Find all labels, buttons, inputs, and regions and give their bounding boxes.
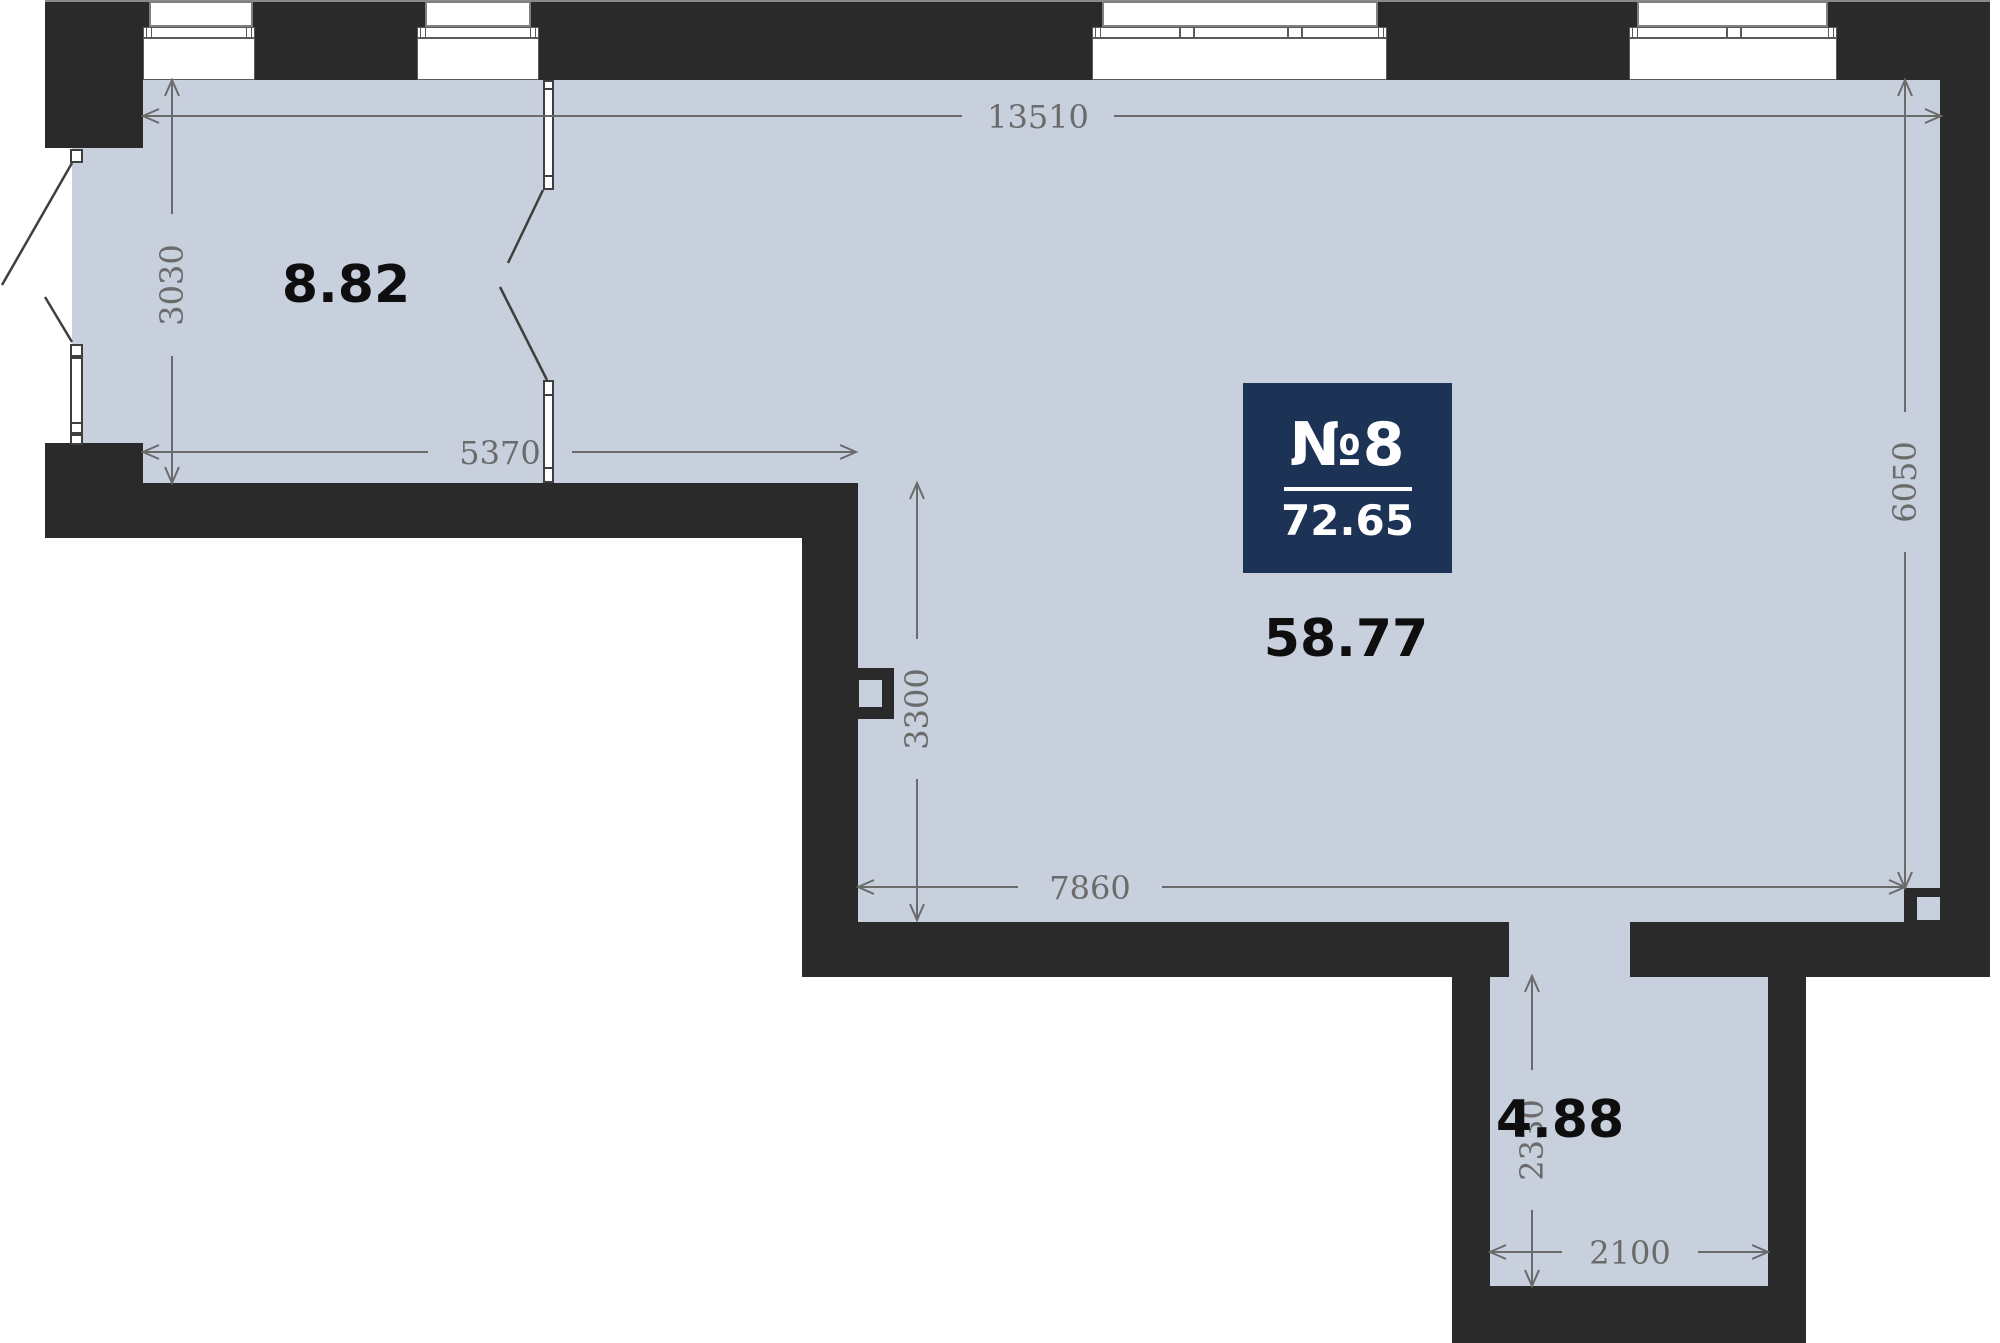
- window-3-post-right: [1378, 28, 1384, 37]
- duct-left-wall-opening: [859, 680, 882, 707]
- window-4-post-right: [1828, 28, 1834, 37]
- window-4-inner-sash: [1629, 38, 1837, 80]
- balcony-door-frame-top: [70, 149, 83, 163]
- floor-plan: 13510 5370 3030 6050 3300 7860: [0, 0, 2000, 1343]
- balcony-fixed-pane: [70, 357, 83, 434]
- window-3-sill: [1092, 27, 1387, 38]
- window-3-post-left: [1095, 28, 1101, 37]
- window-3-outer-sash: [1102, 1, 1378, 27]
- floor-corridor: [1509, 922, 1630, 977]
- window-2-outer-sash: [425, 1, 531, 27]
- balcony-door-frame-mid: [70, 344, 83, 357]
- room-area-label-main: 58.77: [1264, 609, 1428, 669]
- window-3-mullion-1: [1179, 28, 1195, 37]
- window-3-inner-sash: [1092, 38, 1387, 80]
- partition-stub-top-endbar: [545, 175, 552, 177]
- duct-right-corner-opening: [1917, 897, 1940, 920]
- partition-stub-top-cap: [545, 88, 552, 90]
- unit-badge: №8 72.65: [1243, 383, 1452, 573]
- balcony-door-frame-bottom: [70, 434, 83, 445]
- wall-bottom-band-left: [802, 922, 1509, 977]
- room-area-label-hall: 4.88: [1496, 1090, 1624, 1150]
- balcony-door-leaf-1: [2, 163, 72, 285]
- wall-vertical-inner: [802, 538, 858, 977]
- window-3-mullion-2: [1287, 28, 1303, 37]
- partition-stub-bottom-endbar: [545, 467, 552, 469]
- window-1-inner-sash: [143, 38, 255, 80]
- window-1-sill: [143, 27, 255, 38]
- window-2-post-right: [530, 28, 536, 37]
- window-1-outer-sash: [149, 1, 253, 27]
- balcony-fixed-pane-bar: [72, 422, 81, 424]
- partition-stub-top: [543, 80, 554, 190]
- wall-band-below-room1: [143, 483, 858, 538]
- wall-top-left-block: [45, 80, 143, 148]
- unit-number: №8: [1290, 415, 1406, 475]
- window-1-post-left: [146, 28, 152, 37]
- partition-stub-bottom: [543, 380, 554, 483]
- wall-hall-bottom: [1452, 1286, 1806, 1343]
- balcony-door-leaf-2: [45, 297, 72, 342]
- room-area-label-top-left: 8.82: [282, 255, 410, 315]
- unit-badge-divider: [1284, 487, 1412, 491]
- wall-bottom-band-right: [1630, 922, 1990, 977]
- unit-total-area: 72.65: [1281, 500, 1414, 542]
- wall-bottom-left-block: [45, 443, 143, 538]
- window-4-outer-sash: [1637, 1, 1828, 27]
- window-4-post-left: [1632, 28, 1638, 37]
- wall-right: [1940, 80, 1990, 977]
- partition-stub-bottom-cap: [545, 394, 552, 396]
- window-2-sill: [417, 27, 539, 38]
- window-2-post-left: [420, 28, 426, 37]
- window-1-post-right: [246, 28, 252, 37]
- window-2-inner-sash: [417, 38, 539, 80]
- window-4-mullion: [1726, 28, 1742, 37]
- window-4-sill: [1629, 27, 1837, 38]
